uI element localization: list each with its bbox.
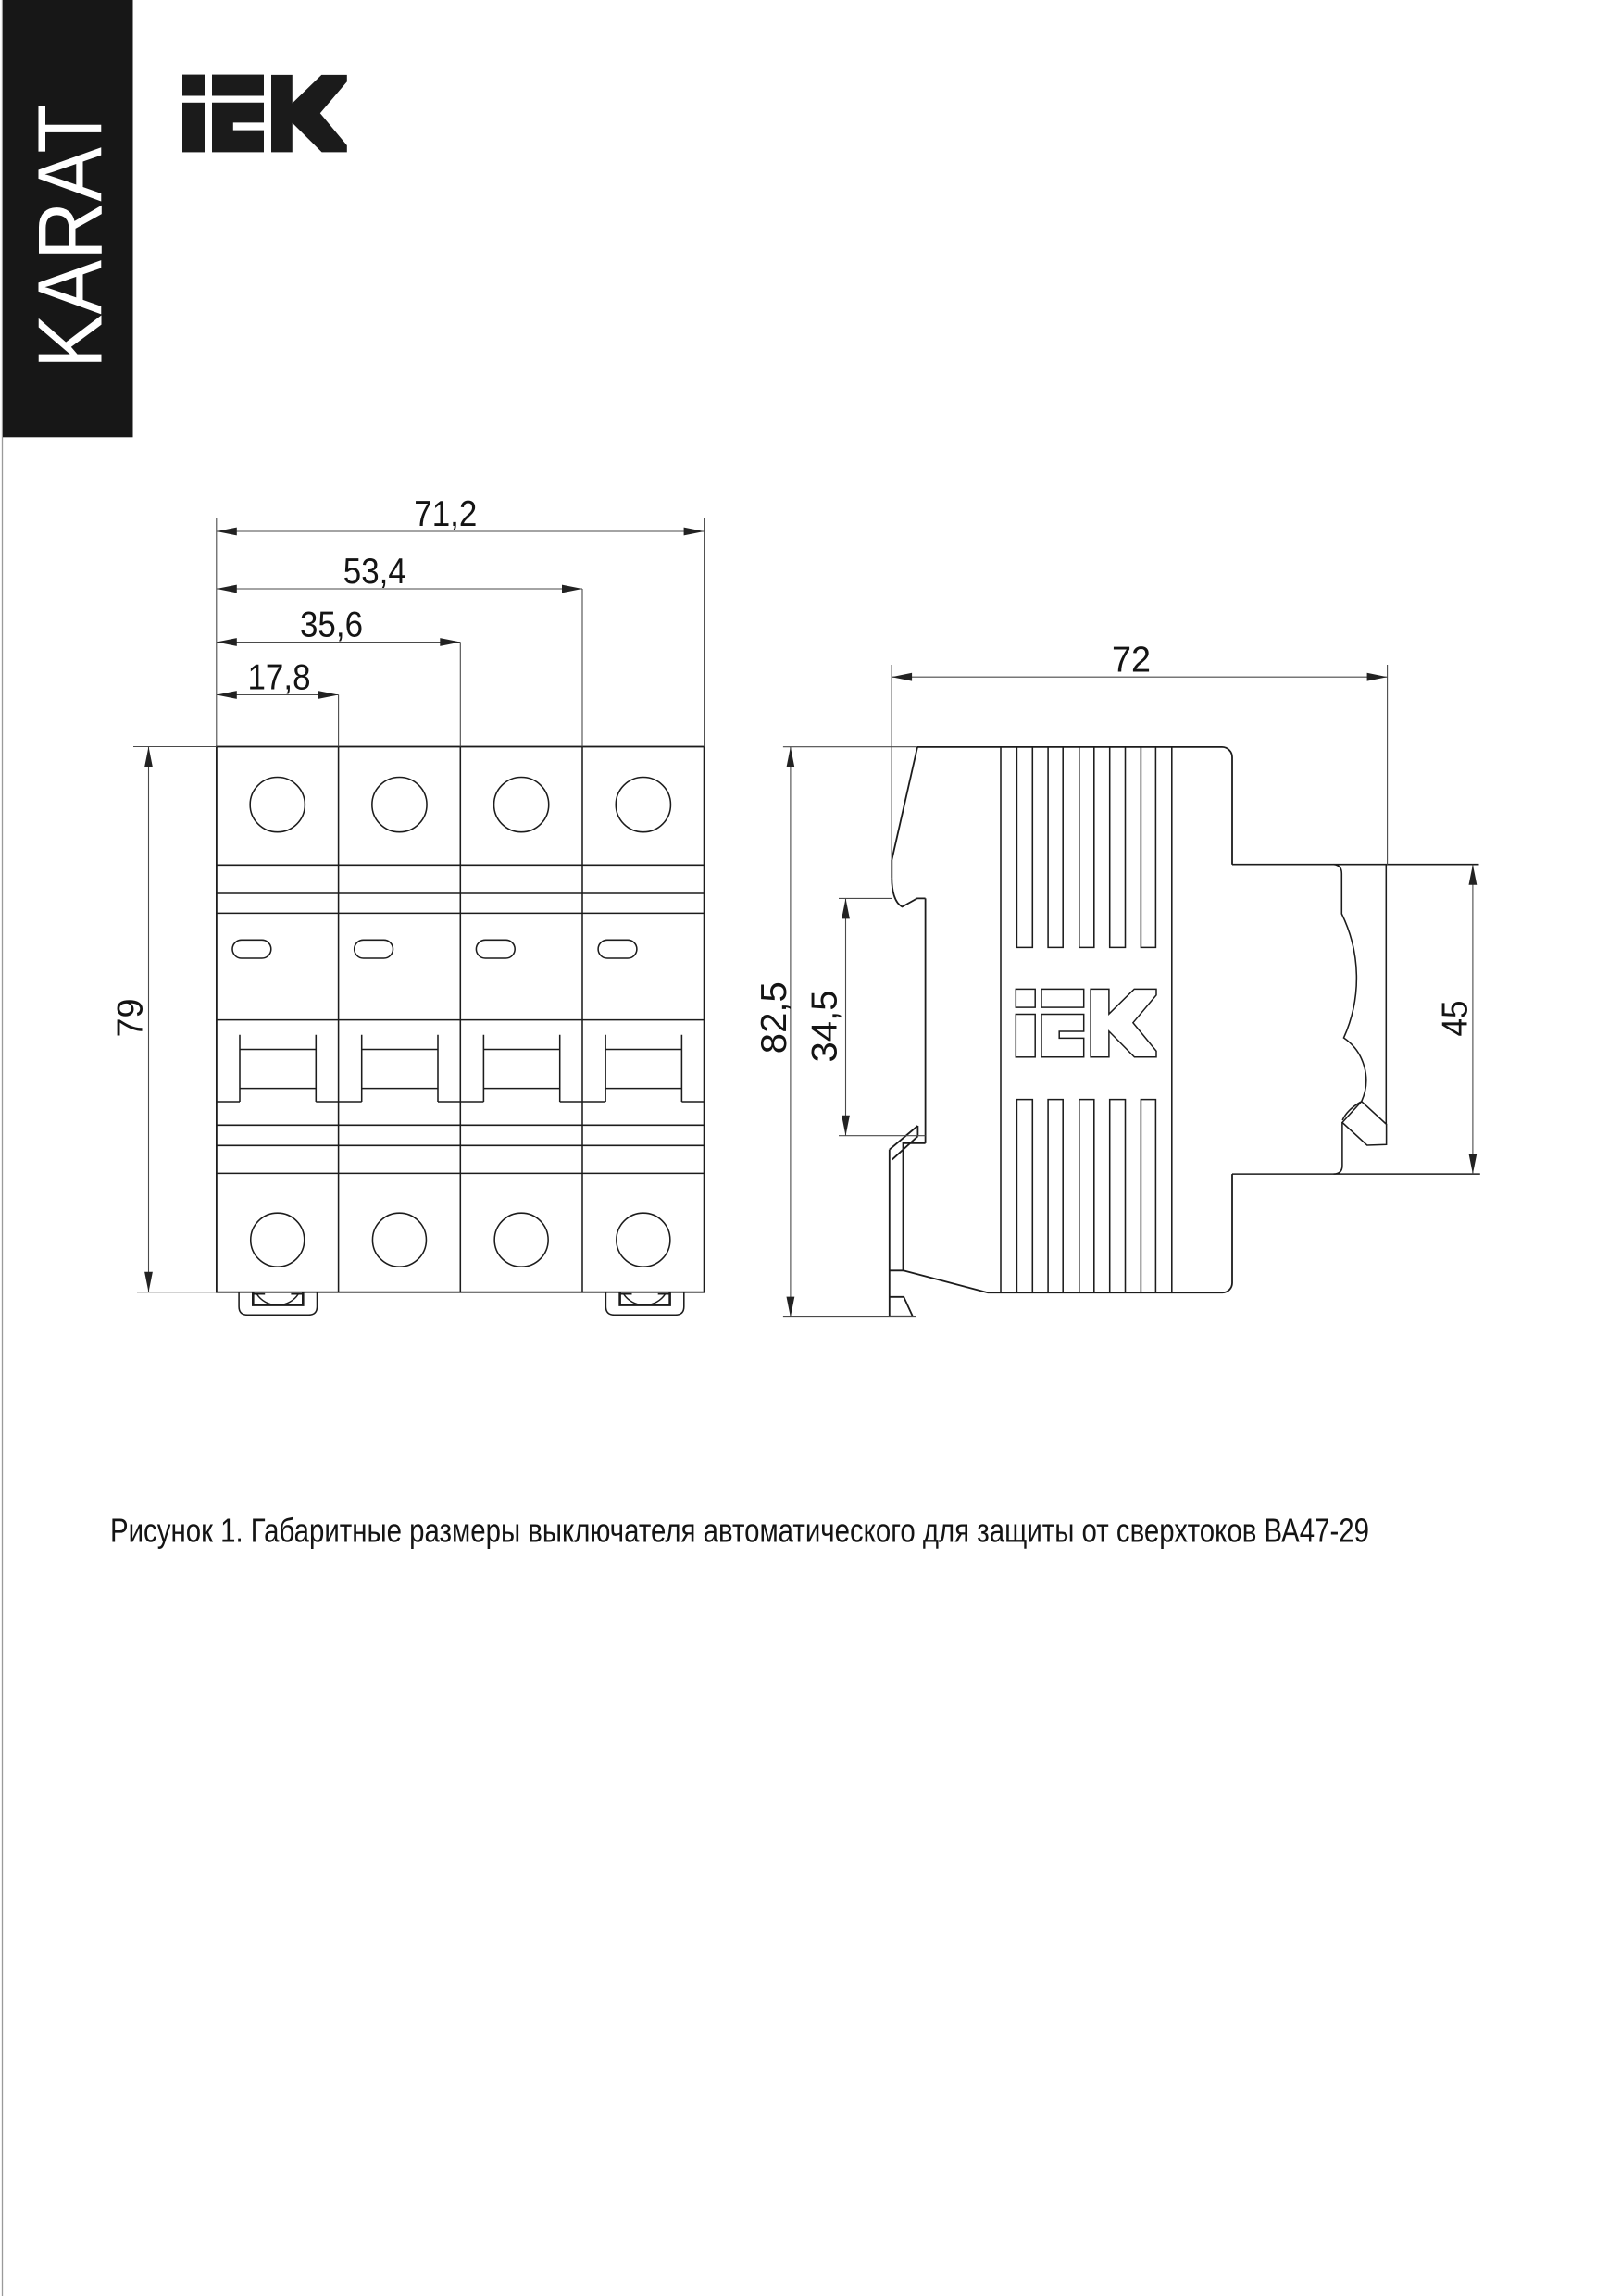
- svg-text:17,8: 17,8: [248, 658, 311, 698]
- svg-text:Рисунок 1. Габаритные размеры: Рисунок 1. Габаритные размеры выключател…: [110, 1512, 1369, 1550]
- svg-text:KARAT: KARAT: [19, 104, 121, 368]
- svg-text:34,5: 34,5: [804, 991, 844, 1063]
- svg-text:79: 79: [110, 999, 150, 1038]
- svg-text:82,5: 82,5: [754, 981, 794, 1054]
- svg-text:45: 45: [1435, 1001, 1475, 1037]
- svg-text:53,4: 53,4: [343, 552, 406, 592]
- svg-text:35,6: 35,6: [300, 605, 363, 645]
- svg-text:72: 72: [1112, 641, 1151, 680]
- svg-text:71,2: 71,2: [414, 494, 477, 534]
